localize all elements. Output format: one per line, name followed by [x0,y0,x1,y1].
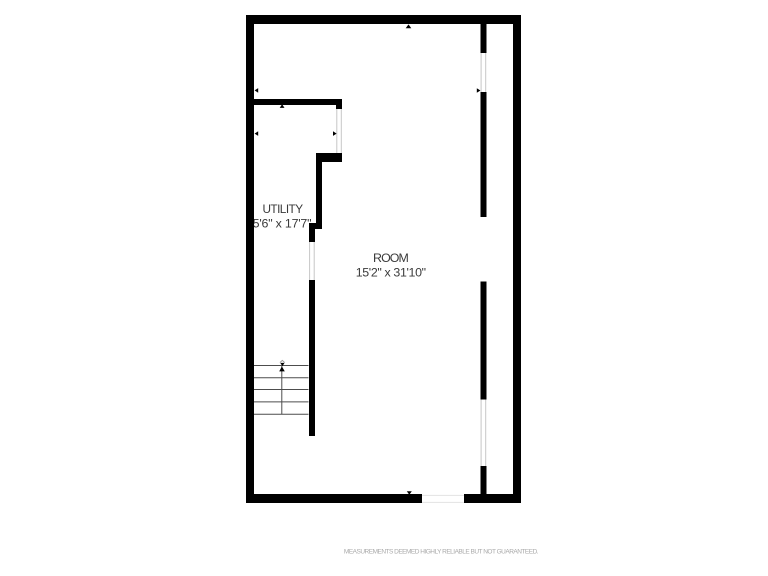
svg-text:15'2" x 31'10": 15'2" x 31'10" [356,266,426,280]
svg-text:ROOM: ROOM [373,251,409,265]
svg-text:MEASUREMENTS DEEMED HIGHLY REL: MEASUREMENTS DEEMED HIGHLY RELIABLE BUT … [344,549,539,556]
svg-text:UTILITY: UTILITY [262,202,303,216]
svg-text:5'6" x 17'7": 5'6" x 17'7" [253,216,312,230]
